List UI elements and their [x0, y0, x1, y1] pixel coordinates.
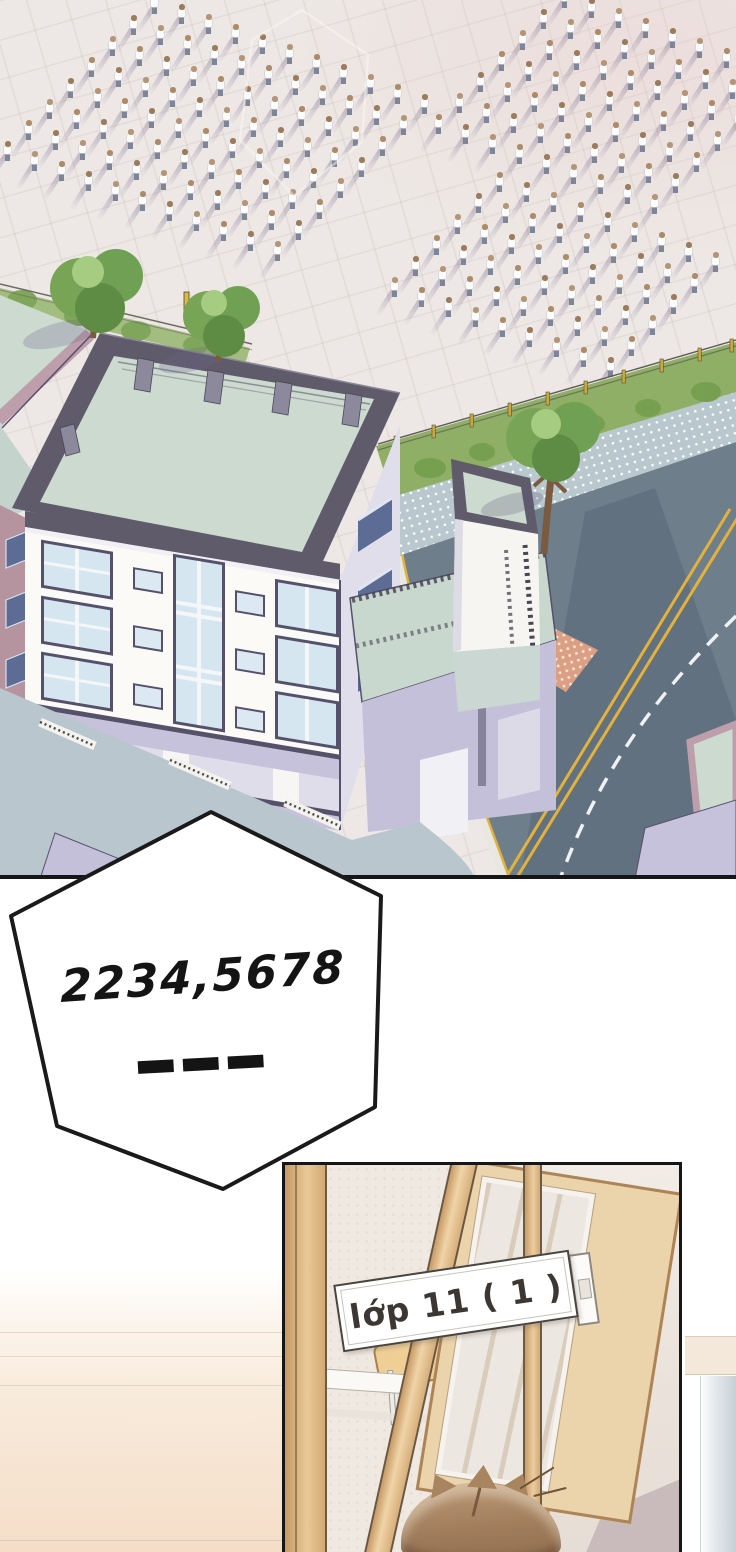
wall-panel-line — [0, 1385, 282, 1386]
classroom-door-panel: lớp 11 ( 1 ) — [282, 1162, 682, 1552]
wall-panel-line — [0, 1356, 282, 1357]
schoolyard-illustration — [0, 0, 736, 879]
character-hair — [401, 1475, 561, 1552]
schoolyard-scene-panel — [0, 0, 736, 879]
door-frame-left — [285, 1165, 327, 1552]
hallway-wall-band-right — [685, 1336, 736, 1375]
speech-bubble: 2234,5678 ——— — [0, 800, 400, 1200]
hallway-wall-left — [0, 1270, 282, 1552]
stairwell-glазing — [173, 554, 225, 733]
court-marking — [240, 10, 368, 196]
wall-panel-line — [0, 1540, 282, 1541]
hallway-door-strip-right — [700, 1376, 736, 1552]
bubble-text-dashes: ——— — [7, 991, 398, 1126]
comic-page: lớp 11 ( 1 ) 2234,5678 ——— — [0, 0, 736, 1552]
wall-panel-line — [0, 1332, 282, 1333]
